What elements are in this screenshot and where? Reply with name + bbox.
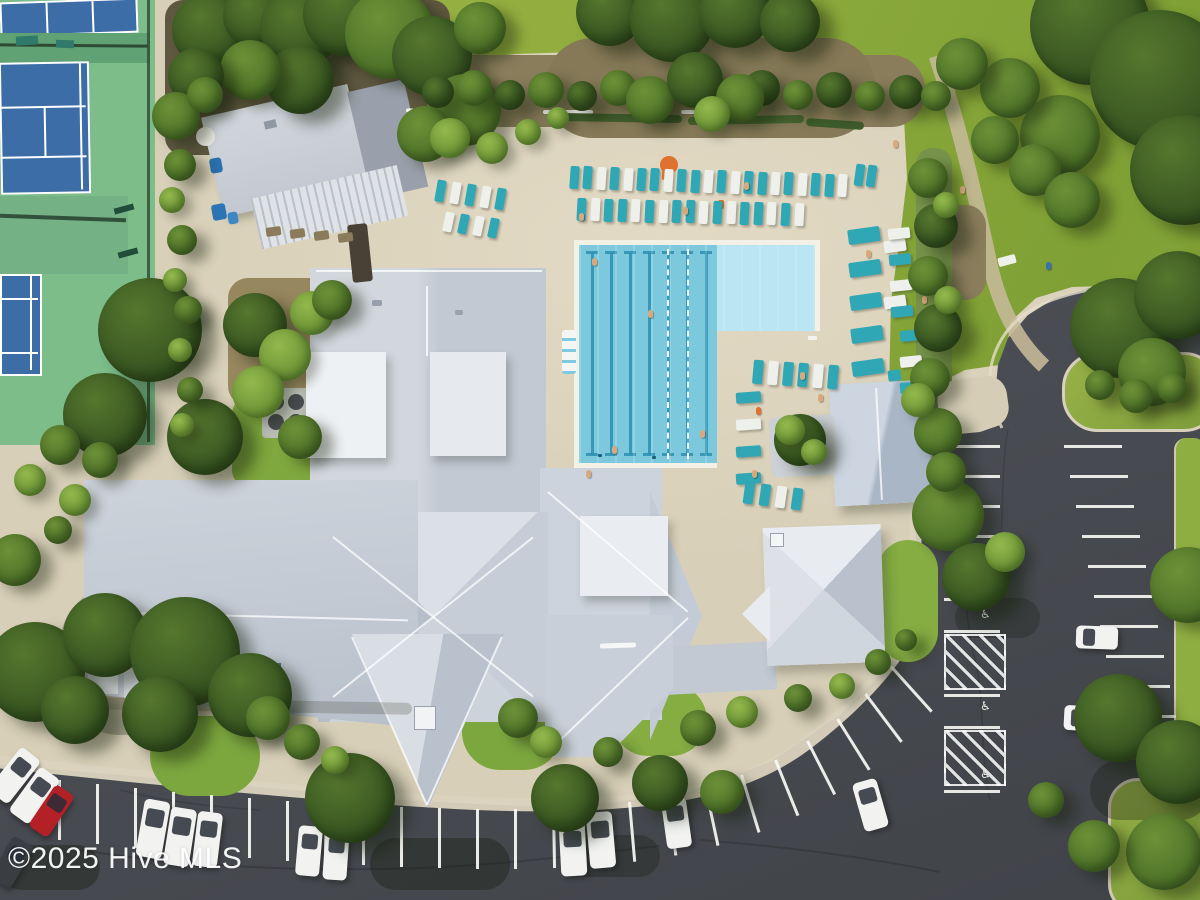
car-windshield: [199, 820, 218, 839]
person: [818, 394, 823, 402]
tree: [174, 296, 202, 324]
pool-lane-end: [681, 251, 693, 254]
pool-lane-end: [586, 251, 598, 254]
tree: [926, 452, 966, 492]
pool-lounger: [824, 173, 835, 197]
parking-stripe: [1088, 565, 1146, 568]
tree: [59, 484, 91, 516]
tree: [1157, 373, 1187, 403]
tree: [454, 2, 506, 54]
tree: [889, 75, 923, 109]
person: [648, 310, 653, 318]
pool-lounger: [623, 167, 634, 191]
tree: [163, 268, 187, 292]
pool-lounger: [827, 365, 839, 390]
pool-lane-end: [700, 453, 712, 456]
pool-lounger: [782, 362, 794, 387]
tree: [284, 724, 320, 760]
pool-lounger: [736, 391, 762, 404]
pool-lounger: [812, 364, 824, 389]
pool-lane-line: [705, 253, 708, 455]
tree: [985, 532, 1025, 572]
parking-stripe: [134, 788, 137, 848]
parking-stripe: [248, 798, 251, 858]
tree: [547, 107, 569, 129]
tree: [321, 746, 349, 774]
pool-lane-end: [681, 453, 693, 456]
pool-lane-end: [662, 453, 674, 456]
person: [893, 140, 898, 148]
parking-stripe: [286, 801, 289, 861]
pool-lounger: [690, 169, 701, 193]
pool-lounger: [797, 173, 808, 197]
parking-stripe: [1082, 535, 1140, 538]
tree: [783, 80, 813, 110]
parked-car: [1076, 625, 1119, 649]
ac-fan: [288, 394, 304, 410]
tree: [14, 464, 46, 496]
tree: [167, 225, 197, 255]
tree: [921, 81, 951, 111]
car-windshield: [171, 816, 192, 836]
pool-lounger: [837, 174, 848, 198]
tree: [168, 338, 192, 362]
person: [586, 470, 591, 478]
person: [800, 372, 805, 380]
pool-ladder: [808, 336, 817, 340]
pool-lounger: [644, 199, 654, 222]
parking-stripe: [514, 809, 517, 869]
pool-lounger: [636, 168, 647, 192]
pool-lounger: [740, 201, 750, 224]
person: [579, 213, 584, 221]
person: [866, 250, 871, 258]
tree: [895, 629, 917, 651]
tree: [515, 119, 541, 145]
pool-lounger: [770, 172, 781, 196]
parking-stripe: [438, 808, 441, 868]
tree: [1119, 379, 1153, 413]
parking-stripe: [944, 726, 1000, 729]
pool-lane-line: [610, 253, 613, 455]
tree: [246, 696, 290, 740]
tree: [170, 413, 194, 437]
tree: [278, 415, 322, 459]
pool-lounger: [767, 361, 779, 386]
blue-bin: [211, 203, 228, 221]
pool-lounger: [780, 202, 790, 225]
tree: [187, 77, 223, 113]
tree: [934, 286, 962, 314]
tree: [167, 399, 243, 475]
watermark: ©2025 Hive MLS: [8, 842, 242, 876]
pool-lounger: [617, 199, 627, 222]
pool-drain: [598, 454, 602, 457]
tree: [82, 442, 118, 478]
tree: [726, 696, 758, 728]
tree: [784, 684, 812, 712]
parking-stripe: [944, 630, 1000, 633]
tree: [1068, 820, 1120, 872]
person: [612, 446, 617, 454]
tree: [829, 673, 855, 699]
pool-lounger: [794, 203, 804, 226]
pool-lane-rope: [687, 249, 689, 459]
tree: [159, 187, 185, 213]
parking-stripe: [1106, 655, 1164, 658]
pool-lounger: [757, 171, 768, 195]
tree: [530, 726, 562, 758]
tree: [528, 72, 564, 108]
pool-lane-end: [700, 251, 712, 254]
tree: [44, 516, 72, 544]
pool-lane-line: [591, 253, 594, 455]
pool-lane-end: [662, 251, 674, 254]
parking-stripe: [476, 809, 479, 869]
tree: [816, 72, 852, 108]
handicap-symbol: ♿: [980, 768, 991, 780]
person: [752, 470, 757, 478]
pool-lounger: [699, 200, 709, 223]
parking-stripe: [1076, 505, 1134, 508]
tree: [1126, 814, 1200, 890]
person: [683, 207, 688, 215]
blue-bin: [227, 211, 239, 225]
tree: [865, 649, 891, 675]
pool-lane-end: [586, 453, 598, 456]
pool-lounger: [890, 305, 913, 318]
tree: [632, 755, 688, 811]
person: [744, 182, 749, 190]
tree: [775, 415, 805, 445]
tree: [476, 132, 508, 164]
pool-lounger: [753, 202, 763, 225]
pool-lounger: [658, 200, 668, 223]
parking-stripe: [1064, 445, 1122, 448]
tree: [567, 81, 597, 111]
car-windshield: [9, 755, 33, 779]
tree: [1028, 782, 1064, 818]
tree: [700, 770, 744, 814]
tree: [1044, 172, 1100, 228]
car-windshield: [144, 808, 165, 828]
pool-lounger: [569, 166, 580, 190]
pool-lounger: [712, 201, 722, 224]
pool-lounger: [604, 198, 614, 221]
tree: [422, 76, 454, 108]
parking-stripe: [944, 694, 1000, 697]
pool-lane-rope: [667, 249, 669, 459]
pool-lounger: [736, 418, 762, 431]
pool-drain: [652, 456, 656, 459]
tree: [122, 676, 198, 752]
tree: [164, 149, 196, 181]
pool-lane-end: [643, 251, 655, 254]
no-parking-hatch: [944, 634, 1006, 690]
pool-lounger: [736, 445, 762, 458]
pool-lounger: [887, 227, 910, 240]
pool-lounger: [609, 167, 620, 191]
umbrella-white: [196, 127, 215, 146]
parking-stripe: [1070, 475, 1128, 478]
pool-lounger: [596, 167, 607, 191]
tree: [495, 80, 525, 110]
tree: [430, 118, 470, 158]
chimney: [770, 533, 784, 547]
pool-lane-line: [648, 253, 651, 455]
parking-stripe: [96, 784, 99, 844]
aerial-photo-community-clubhouse: ♿♿♿ ©2025 Hive MLS: [0, 0, 1200, 900]
pool-lounger: [631, 199, 641, 222]
pool-lane-line: [667, 253, 670, 455]
tree: [40, 425, 80, 465]
pool-lane-end: [605, 251, 617, 254]
person: [922, 296, 927, 304]
pool-lounger: [676, 169, 687, 193]
tree: [177, 377, 203, 403]
tree: [801, 439, 827, 465]
pool-lounger: [672, 200, 682, 223]
person: [1046, 262, 1051, 270]
car-windshield: [1082, 629, 1095, 646]
pool-lounger: [726, 201, 736, 224]
pool-lane-line: [629, 253, 632, 455]
tree: [694, 96, 730, 132]
parked-car: [295, 825, 323, 877]
car-windshield: [563, 830, 582, 847]
car-windshield: [857, 786, 878, 805]
car-windshield: [301, 833, 319, 849]
person: [592, 258, 597, 266]
pool-steps: [562, 330, 576, 374]
parking-stripe: [400, 807, 403, 867]
tree: [305, 753, 395, 843]
car-windshield: [590, 820, 610, 838]
person: [700, 430, 705, 438]
tree: [980, 58, 1040, 118]
pool-lounger: [590, 198, 600, 221]
tree: [98, 278, 202, 382]
pool-lounger: [663, 169, 674, 193]
parking-stripe: [944, 790, 1000, 793]
pool-lounger: [767, 202, 777, 225]
tree: [232, 366, 284, 418]
pool-lounger: [810, 173, 821, 197]
pool-lounger: [752, 360, 764, 385]
parking-stripe: [1094, 595, 1152, 598]
pool-lounger: [703, 170, 714, 194]
tree: [312, 280, 352, 320]
person: [960, 186, 965, 194]
pool-lane-line: [686, 253, 689, 455]
tree: [220, 40, 280, 100]
car-windshield: [46, 792, 68, 813]
person: [756, 407, 761, 415]
tree: [855, 81, 885, 111]
tree: [901, 383, 935, 417]
tree: [456, 70, 492, 106]
tree: [680, 710, 716, 746]
tree: [1085, 370, 1115, 400]
pool-lane-end: [624, 251, 636, 254]
no-parking-hatch: [944, 730, 1006, 786]
tree: [531, 764, 599, 832]
tree: [41, 676, 109, 744]
pool-lounger: [730, 171, 741, 195]
blue-bin: [209, 157, 223, 174]
tree: [933, 192, 959, 218]
teal-chair: [887, 369, 901, 382]
tree: [593, 737, 623, 767]
handicap-symbol: ♿: [980, 700, 991, 712]
pool-lounger: [888, 253, 911, 266]
pool-lane-end: [624, 453, 636, 456]
